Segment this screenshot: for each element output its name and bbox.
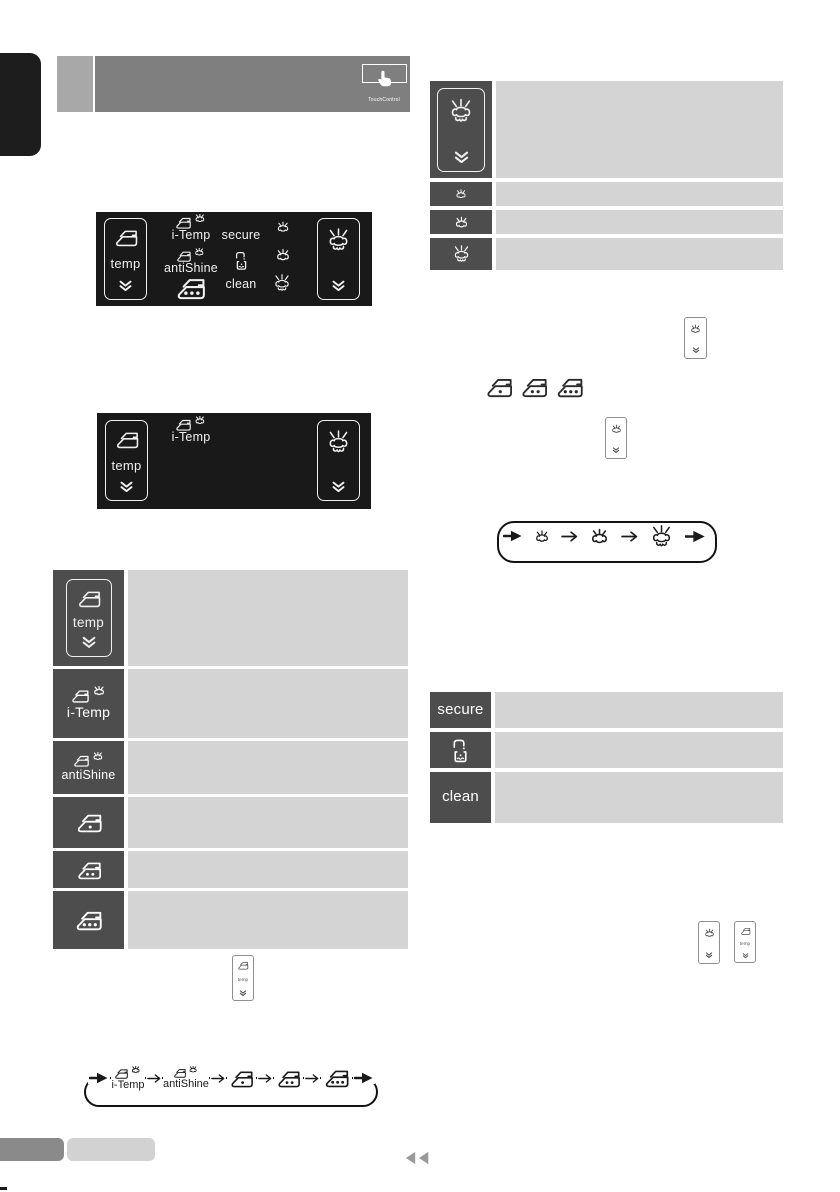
table-cell [495, 692, 783, 728]
manual-page: TouchControl temp i-Temp secure antiShin… [0, 0, 840, 1192]
iron-2-dot-icon [75, 860, 103, 880]
clean-label: clean [213, 278, 269, 292]
i-temp-cell: i-Temp [53, 669, 124, 738]
temp-button-label: temp [111, 458, 141, 473]
arrow-right-icon [146, 1073, 162, 1084]
iron-steam-icon [170, 1066, 202, 1078]
chevron-down-icon [692, 347, 700, 353]
steam-button [437, 88, 485, 172]
iron-3-dot-icon [321, 1068, 352, 1088]
table-cell [495, 732, 783, 768]
iron-steam-icon [111, 1066, 145, 1079]
iron-steam-icon [172, 214, 210, 229]
antishine-cell: antiShine [53, 741, 124, 794]
steam-cycle-diagram [502, 519, 707, 553]
chevron-down-icon [453, 151, 470, 163]
table-row [53, 851, 408, 888]
calc-cell [430, 732, 491, 768]
temp-button: temp [66, 579, 112, 657]
header-bar: TouchControl [95, 56, 410, 112]
touchcontrol-label: TouchControl [353, 97, 415, 103]
table-cell [128, 851, 408, 888]
footer-page-pill-dark [0, 1138, 64, 1161]
i-temp-label: i-Temp [172, 431, 211, 445]
iron-steam-icon [172, 416, 210, 431]
chevron-down-icon [331, 280, 346, 291]
calc-icon [450, 737, 471, 764]
temp-cycle-diagram: i-Temp antiShine [88, 1056, 375, 1100]
side-tab [0, 53, 41, 156]
iron-steam-icon [68, 686, 110, 703]
steam-button-cell [430, 81, 492, 178]
temp-button-label: temp [73, 615, 104, 630]
iron-icon [740, 927, 751, 935]
steam-icon [325, 228, 352, 252]
steam-button-small [698, 921, 720, 964]
table-cell [496, 238, 783, 270]
iron-3-dot-icon [554, 376, 585, 398]
iron-steam-icon [173, 248, 209, 262]
steam-level-3-icon [451, 245, 472, 263]
steam-settings-table [430, 81, 783, 270]
iron-1-dot-cell [53, 797, 124, 848]
table-cell [496, 182, 783, 206]
steam-button-small [605, 417, 627, 459]
table-cell [496, 210, 783, 234]
table-row [430, 210, 783, 234]
iron-icon [113, 228, 139, 247]
steam-level-2-cell [430, 210, 492, 234]
steam-icon [447, 98, 475, 124]
steam-level-2-icon [453, 216, 470, 229]
cycle-start-arrow-icon [88, 1072, 110, 1084]
table-row [430, 182, 783, 206]
table-row: antiShine [53, 741, 408, 794]
temp-button-label: temp [740, 942, 750, 947]
functions-table: secure clean [430, 692, 783, 823]
clean-label: clean [442, 789, 479, 806]
iron-2-dot-icon [274, 1069, 303, 1088]
antishine-label: antiShine [164, 262, 218, 276]
iron-1-dot-icon [484, 376, 514, 398]
iron-3-dot-cell [53, 891, 124, 949]
chevron-down-icon [239, 990, 247, 996]
arrow-right-icon [620, 530, 639, 543]
temp-button-small: temp [232, 955, 254, 1001]
header-accent-square [57, 56, 93, 112]
steam-level-1-icon [532, 530, 552, 543]
secure-label: secure [217, 229, 265, 243]
calc-icon [233, 250, 250, 271]
arrow-right-icon [304, 1073, 320, 1084]
control-panel-full: temp i-Temp secure antiShine clean [96, 212, 372, 306]
chevron-down-icon [612, 447, 620, 453]
iron-2-dot-icon [519, 376, 549, 398]
chevron-down-icon [331, 481, 346, 492]
steam-level-2-icon [274, 248, 292, 262]
temp-button-small: temp [734, 921, 756, 963]
secure-cell: secure [430, 692, 491, 728]
chevron-down-icon [118, 280, 133, 291]
cycle-end-arrow-icon [353, 1072, 375, 1084]
steam-icon [610, 424, 623, 434]
table-cell [128, 570, 408, 666]
i-temp-indicator: i-Temp [168, 416, 214, 445]
back-arrows-icon [404, 1150, 432, 1166]
table-row: temp [53, 570, 408, 666]
table-row: clean [430, 772, 783, 823]
steam-icon [703, 928, 716, 938]
secure-label: secure [437, 702, 483, 719]
steam-level-3-cell [430, 238, 492, 270]
antishine-step: antiShine [163, 1066, 209, 1090]
clean-cell: clean [430, 772, 491, 823]
arrow-right-icon [210, 1073, 226, 1084]
iron-3-dot-icon [173, 276, 208, 300]
antishine-label: antiShine [62, 769, 116, 783]
temp-button: temp [105, 420, 148, 501]
temp-button: temp [104, 218, 147, 300]
table-cell [495, 772, 783, 823]
i-temp-label: i-Temp [172, 229, 211, 243]
steam-button [317, 218, 360, 300]
table-row [430, 81, 783, 178]
table-cell [128, 797, 408, 848]
iron-icon [114, 430, 140, 449]
chevron-down-icon [705, 952, 713, 958]
iron-steam-icon [70, 752, 108, 767]
i-temp-label: i-Temp [67, 705, 110, 720]
table-cell [128, 891, 408, 949]
arrow-right-icon [257, 1073, 273, 1084]
chevron-down-icon [742, 953, 749, 958]
steam-icon [689, 324, 702, 334]
i-temp-indicator: i-Temp [168, 214, 214, 243]
table-row: secure [430, 692, 783, 728]
temp-button-label: temp [110, 256, 140, 271]
steam-icon [325, 430, 352, 454]
table-cell [496, 81, 783, 178]
iron-3-dot-icon [73, 909, 104, 931]
iron-1-dot-icon [227, 1069, 256, 1088]
table-cell [128, 741, 408, 794]
antishine-indicator: antiShine [162, 248, 220, 276]
arrow-right-icon [560, 530, 579, 543]
temp-settings-table: temp i-Temp antiShine [53, 570, 408, 949]
iron-icon [237, 961, 249, 970]
steam-level-3-icon [271, 274, 293, 292]
chevron-down-icon [119, 481, 134, 492]
cycle-end-arrow-icon [684, 530, 707, 543]
table-cell [128, 669, 408, 738]
temp-button-label: temp [238, 978, 248, 983]
table-row [53, 891, 408, 949]
table-row [53, 797, 408, 848]
steam-level-1-icon [454, 189, 468, 199]
iron-icon [76, 589, 102, 608]
iron-1-dot-icon [74, 812, 104, 833]
steam-button-small [684, 317, 707, 359]
table-row [430, 732, 783, 768]
steam-button [317, 420, 360, 501]
iron-dots-row [484, 376, 585, 398]
table-row: i-Temp [53, 669, 408, 738]
touch-hand-icon [377, 69, 393, 88]
steam-level-1-icon [275, 221, 291, 233]
antishine-label: antiShine [163, 1079, 209, 1090]
steam-level-1-cell [430, 182, 492, 206]
steam-level-2-icon [587, 528, 612, 545]
iron-2-dot-cell [53, 851, 124, 888]
control-panel-itemp: temp i-Temp [97, 413, 371, 509]
i-temp-label: i-Temp [111, 1080, 144, 1091]
corner-mark [0, 1187, 7, 1190]
i-temp-step: i-Temp [111, 1066, 145, 1091]
footer-page-pill-light [67, 1138, 155, 1161]
table-row [430, 238, 783, 270]
steam-level-3-icon [647, 525, 676, 548]
cycle-start-arrow-icon [502, 530, 524, 542]
temp-button-cell: temp [53, 570, 124, 666]
chevron-down-icon [81, 636, 97, 648]
